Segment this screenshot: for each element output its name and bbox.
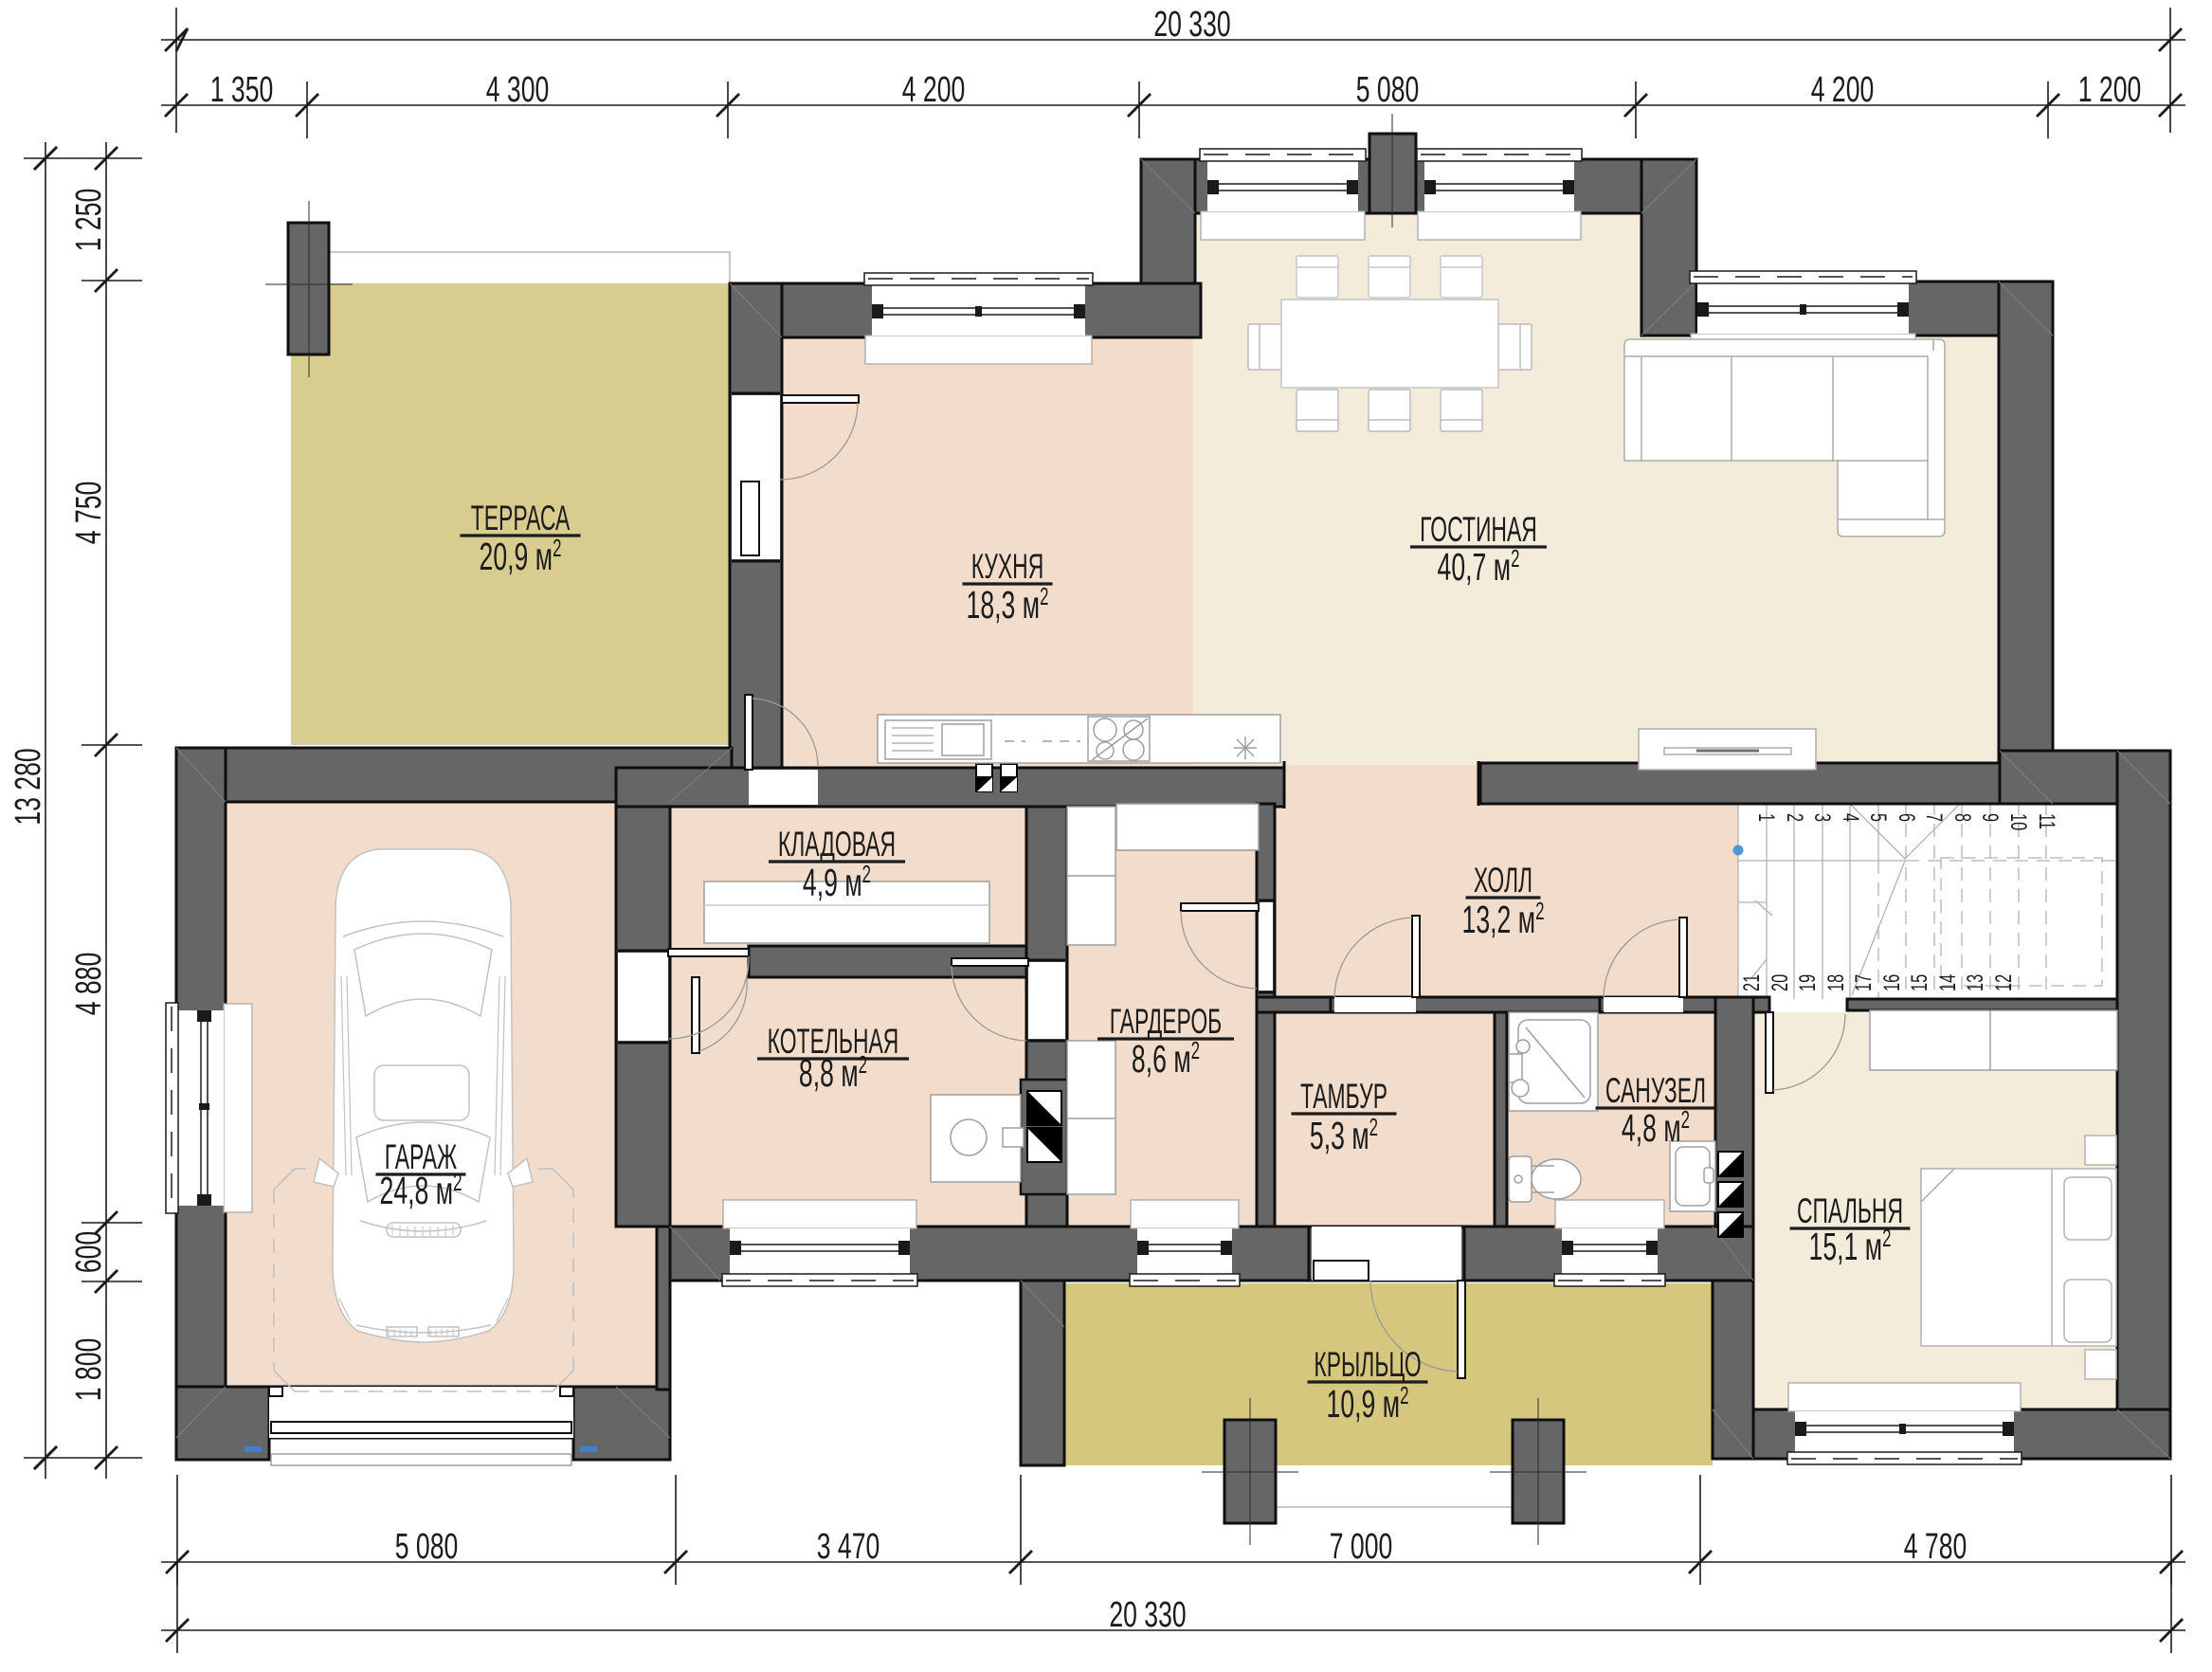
svg-text:4: 4	[1838, 813, 1863, 822]
svg-text:4 200: 4 200	[902, 68, 966, 109]
svg-text:600: 600	[67, 1231, 108, 1273]
svg-text:КЛАДОВАЯ: КЛАДОВАЯ	[778, 824, 896, 863]
svg-text:1 200: 1 200	[2078, 68, 2142, 109]
svg-text:ТАМБУР: ТАМБУР	[1300, 1076, 1387, 1116]
svg-text:17: 17	[1851, 974, 1877, 991]
svg-text:4 880: 4 880	[67, 953, 108, 1016]
svg-text:4 200: 4 200	[1811, 68, 1875, 109]
svg-text:10,9 м2: 10,9 м2	[1327, 1381, 1409, 1426]
svg-text:9: 9	[1977, 813, 2003, 822]
svg-text:13: 13	[1963, 974, 1988, 991]
svg-text:20: 20	[1768, 974, 1793, 991]
svg-text:ГОСТИНАЯ: ГОСТИНАЯ	[1420, 509, 1537, 549]
svg-text:4 300: 4 300	[486, 68, 550, 109]
svg-text:10: 10	[2005, 813, 2031, 830]
svg-text:15,1 м2: 15,1 м2	[1809, 1224, 1892, 1268]
svg-text:16: 16	[1879, 974, 1905, 991]
svg-text:4,9 м2: 4,9 м2	[803, 860, 871, 904]
svg-text:14: 14	[1935, 974, 1961, 991]
svg-text:ГАРДЕРОБ: ГАРДЕРОБ	[1110, 1001, 1222, 1041]
svg-text:4 780: 4 780	[1904, 1525, 1967, 1566]
svg-text:ТЕРРАСА: ТЕРРАСА	[471, 498, 571, 537]
svg-text:3 470: 3 470	[817, 1525, 880, 1566]
svg-text:5: 5	[1865, 813, 1891, 822]
svg-text:11: 11	[2034, 813, 2059, 829]
svg-text:8: 8	[1949, 813, 1975, 822]
svg-text:1 800: 1 800	[67, 1338, 108, 1402]
svg-text:САНУЗЕЛ: САНУЗЕЛ	[1605, 1070, 1706, 1110]
svg-text:13 280: 13 280	[7, 748, 47, 825]
svg-text:5 080: 5 080	[1356, 68, 1420, 109]
svg-text:12: 12	[1991, 974, 2017, 991]
svg-text:19: 19	[1795, 974, 1821, 991]
svg-text:7: 7	[1921, 813, 1947, 822]
svg-text:6: 6	[1894, 813, 1919, 822]
svg-text:1: 1	[1753, 813, 1779, 822]
svg-text:20 330: 20 330	[1109, 1593, 1186, 1634]
svg-text:8,8 м2: 8,8 м2	[799, 1050, 867, 1095]
svg-text:4 750: 4 750	[67, 482, 108, 545]
svg-text:15: 15	[1907, 974, 1932, 991]
svg-text:20,9 м2: 20,9 м2	[480, 534, 562, 578]
svg-text:5,3 м2: 5,3 м2	[1310, 1113, 1378, 1157]
svg-text:13,2 м2: 13,2 м2	[1462, 897, 1545, 941]
svg-text:4,8 м2: 4,8 м2	[1622, 1105, 1690, 1150]
svg-text:2: 2	[1782, 813, 1807, 822]
svg-text:8,6 м2: 8,6 м2	[1132, 1036, 1200, 1081]
svg-text:20 330: 20 330	[1153, 3, 1230, 44]
svg-text:40,7 м2: 40,7 м2	[1438, 544, 1520, 589]
svg-text:1 250: 1 250	[67, 189, 108, 252]
svg-text:24,8 м2: 24,8 м2	[380, 1168, 462, 1212]
svg-text:18,3 м2: 18,3 м2	[967, 582, 1049, 627]
svg-text:КРЫЛЬЦО: КРЫЛЬЦО	[1314, 1344, 1421, 1384]
svg-text:21: 21	[1739, 974, 1765, 991]
svg-text:7 000: 7 000	[1330, 1525, 1393, 1566]
svg-text:5 080: 5 080	[395, 1525, 459, 1566]
svg-text:18: 18	[1823, 974, 1849, 991]
svg-text:3: 3	[1809, 813, 1835, 822]
svg-text:ХОЛЛ: ХОЛЛ	[1474, 860, 1532, 900]
svg-text:КУХНЯ: КУХНЯ	[971, 546, 1044, 586]
svg-text:1 350: 1 350	[210, 68, 274, 109]
